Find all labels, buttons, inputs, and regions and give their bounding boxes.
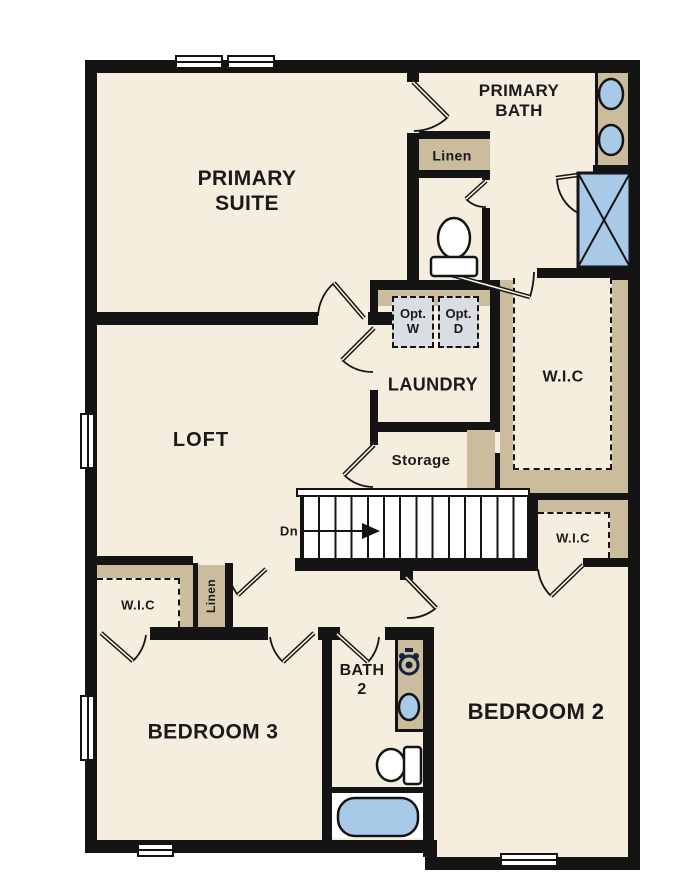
window: [175, 55, 223, 69]
wic-bedroom3-shelving: [97, 565, 193, 578]
wall: [400, 571, 413, 580]
window: [137, 843, 174, 857]
wall: [97, 556, 193, 565]
wall: [628, 60, 640, 870]
wall: [370, 280, 500, 290]
wall: [490, 280, 500, 422]
window: [80, 413, 95, 469]
wall: [97, 312, 318, 325]
primary-vanity-counter: [595, 73, 628, 165]
wall: [85, 60, 640, 73]
closet-label-linen-hall: Linen: [204, 579, 218, 613]
optional-dryer-label: Opt. D: [440, 307, 477, 337]
room-label-bedroom3: BEDROOM 3: [148, 721, 279, 746]
room-label-primary-suite: PRIMARY SUITE: [185, 167, 310, 217]
wall: [583, 558, 628, 567]
wall: [295, 558, 538, 571]
wic-bedroom3-shelving: [180, 578, 193, 627]
wall: [322, 627, 332, 840]
wic-bedroom2-shelving: [610, 512, 628, 558]
wic-bedroom2-shelving: [538, 500, 628, 512]
wall: [527, 489, 538, 567]
closet-label-wic-bedroom3: W.I.C: [121, 597, 155, 612]
room-label-bath2: BATH 2: [333, 662, 391, 700]
room-label-loft: LOFT: [173, 429, 229, 453]
window: [227, 55, 275, 69]
bath2-vanity-counter: [395, 640, 423, 732]
room-label-storage: Storage: [392, 452, 451, 470]
optional-washer-box: Opt. W: [392, 296, 434, 348]
room-label-laundry: LAUNDRY: [388, 374, 478, 395]
window: [500, 853, 558, 867]
stair-direction-label: Dn: [280, 523, 298, 538]
window: [80, 695, 95, 761]
floor-plan: Opt. W Opt. D: [0, 0, 679, 880]
closet-label-wic-primary: W.I.C: [542, 369, 583, 388]
wall: [225, 563, 233, 627]
storage-shelving: [467, 430, 495, 492]
wall: [370, 280, 378, 325]
stair-landing-rail: [296, 488, 530, 497]
tub-niche: [332, 793, 423, 838]
optional-washer-label: Opt. W: [394, 307, 432, 337]
wall: [419, 131, 490, 139]
staircase: [300, 497, 527, 558]
room-label-bedroom2: BEDROOM 2: [468, 699, 605, 725]
closet-label-linen-bath: Linen: [432, 148, 471, 165]
wall: [482, 208, 490, 280]
wall: [150, 627, 268, 640]
wall: [419, 170, 490, 178]
closet-label-wic-bedroom2: W.I.C: [556, 530, 590, 545]
wall: [423, 627, 434, 857]
wall: [593, 165, 628, 174]
wall: [407, 60, 419, 82]
room-label-primary-bath: PRIMARY BATH: [467, 81, 572, 121]
optional-dryer-box: Opt. D: [438, 296, 479, 348]
wall: [370, 432, 378, 445]
